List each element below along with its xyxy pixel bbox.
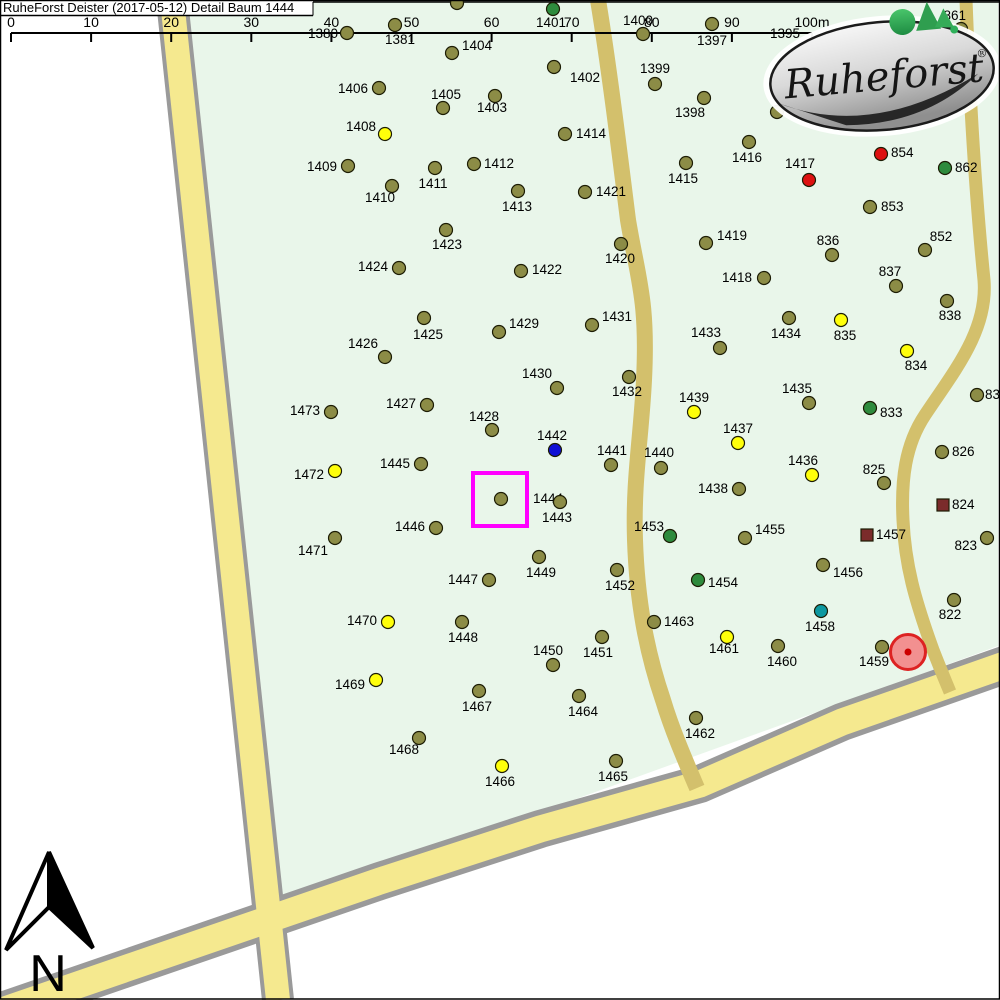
- tree-marker-1450[interactable]: [547, 659, 560, 672]
- tree-marker-1408[interactable]: [379, 128, 392, 141]
- tree-label-1465: 1465: [598, 769, 628, 784]
- tree-label-852: 852: [930, 229, 953, 244]
- tree-marker-1380[interactable]: [341, 27, 354, 40]
- tree-marker-853[interactable]: [864, 201, 877, 214]
- north-label: N: [29, 945, 67, 1000]
- tree-label-1447: 1447: [448, 572, 478, 587]
- tree-label-838: 838: [939, 308, 962, 323]
- tree-marker-826[interactable]: [936, 446, 949, 459]
- tree-label-1404: 1404: [462, 38, 493, 53]
- tree-marker-825[interactable]: [878, 477, 891, 490]
- tree-marker-862[interactable]: [939, 162, 952, 175]
- tree-marker-unlabeled[interactable]: [451, 0, 464, 10]
- tree-label-1449: 1449: [526, 565, 556, 580]
- tree-marker-1405[interactable]: [437, 102, 450, 115]
- tree-label-1446: 1446: [395, 519, 425, 534]
- tree-marker-1409[interactable]: [342, 160, 355, 173]
- tree-marker-1426[interactable]: [379, 351, 392, 364]
- tree-marker-1464[interactable]: [573, 690, 586, 703]
- tree-label-1411: 1411: [418, 176, 447, 191]
- tree-label-1468: 1468: [389, 742, 419, 757]
- tree-marker-835[interactable]: [835, 314, 848, 327]
- tree-marker-1463[interactable]: [648, 616, 661, 629]
- tree-marker-1444[interactable]: [495, 493, 508, 506]
- tree-marker-1411[interactable]: [429, 162, 442, 175]
- tree-label-1412: 1412: [484, 156, 514, 171]
- logo-registered-mark: ®: [976, 47, 988, 61]
- tree-label-1472: 1472: [294, 467, 324, 482]
- tree-label-1459: 1459: [859, 654, 889, 669]
- tree-marker-1462[interactable]: [690, 712, 703, 725]
- tree-marker-1425[interactable]: [418, 312, 431, 325]
- tree-label-832: 832: [985, 387, 1000, 402]
- tree-label-1455: 1455: [755, 522, 785, 537]
- tree-label-1415: 1415: [668, 171, 698, 186]
- scale-tick-label: 10: [83, 14, 99, 30]
- tree-label-1448: 1448: [448, 630, 478, 645]
- tree-marker-1456[interactable]: [817, 559, 830, 572]
- tree-marker-1397[interactable]: [706, 18, 719, 31]
- tree-marker-1399[interactable]: [649, 78, 662, 91]
- tree-marker-854[interactable]: [875, 148, 888, 161]
- tree-label-854: 854: [891, 145, 914, 160]
- tree-label-1399: 1399: [640, 61, 670, 76]
- tree-label-1451: 1451: [583, 645, 613, 660]
- tree-label-1421: 1421: [596, 184, 626, 199]
- tree-marker-1448[interactable]: [456, 616, 469, 629]
- tree-label-1402: 1402: [570, 70, 600, 85]
- tree-label-1418: 1418: [722, 270, 752, 285]
- tree-label-1457: 1457: [876, 527, 906, 542]
- tree-marker-1430[interactable]: [551, 382, 564, 395]
- tree-marker-1449[interactable]: [533, 551, 546, 564]
- tree-marker-1438[interactable]: [733, 483, 746, 496]
- tree-marker-834[interactable]: [901, 345, 914, 358]
- tree-label-1413: 1413: [502, 199, 532, 214]
- tree-marker-1381[interactable]: [389, 19, 402, 32]
- tree-marker-1454[interactable]: [692, 574, 705, 587]
- tree-label-1445: 1445: [380, 456, 410, 471]
- tree-label-1452: 1452: [605, 578, 635, 593]
- tree-marker-1434[interactable]: [783, 312, 796, 325]
- tree-marker-1427[interactable]: [421, 399, 434, 412]
- tree-marker-1471[interactable]: [329, 532, 342, 545]
- north-arrow-right-half: [49, 852, 93, 948]
- tree-marker-1412[interactable]: [468, 158, 481, 171]
- tree-label-1443: 1443: [542, 510, 572, 525]
- tree-label-1471: 1471: [298, 543, 328, 558]
- tree-marker-1459[interactable]: [876, 641, 889, 654]
- tree-marker-837[interactable]: [890, 280, 903, 293]
- tree-label-1454: 1454: [708, 575, 739, 590]
- tree-label-1473: 1473: [290, 403, 320, 418]
- tree-label-823: 823: [954, 538, 977, 553]
- tree-label-1436: 1436: [788, 453, 818, 468]
- tree-label-1432: 1432: [612, 384, 642, 399]
- tree-marker-1458[interactable]: [815, 605, 828, 618]
- tree-label-1426: 1426: [348, 336, 378, 351]
- scale-tick-label: 90: [724, 14, 740, 30]
- tree-marker-1460[interactable]: [772, 640, 785, 653]
- tree-label-1424: 1424: [358, 259, 389, 274]
- tree-label-1419: 1419: [717, 228, 747, 243]
- tree-label-1453: 1453: [634, 519, 664, 534]
- tree-marker-1447[interactable]: [483, 574, 496, 587]
- tree-marker-1451[interactable]: [596, 631, 609, 644]
- tree-label-1431: 1431: [602, 309, 632, 324]
- tree-marker-1432[interactable]: [623, 371, 636, 384]
- tree-label-1464: 1464: [568, 704, 599, 719]
- tree-label-1466: 1466: [485, 774, 515, 789]
- scale-tick-label: 70: [564, 14, 580, 30]
- tree-marker-1455[interactable]: [739, 532, 752, 545]
- tree-marker-1469[interactable]: [370, 674, 383, 687]
- tree-label-1409: 1409: [307, 159, 337, 174]
- tree-label-1405: 1405: [431, 87, 461, 102]
- tree-marker-836[interactable]: [826, 249, 839, 262]
- tree-label-1427: 1427: [386, 396, 416, 411]
- tree-label-1430: 1430: [522, 366, 552, 381]
- tree-label-1461: 1461: [709, 641, 739, 656]
- scale-tick-label: 50: [404, 14, 420, 30]
- tree-marker-1424[interactable]: [393, 262, 406, 275]
- scale-tick-label: 0: [7, 14, 15, 30]
- tree-label-836: 836: [817, 233, 840, 248]
- tree-label-1397: 1397: [697, 33, 727, 48]
- scale-tick-label: 20: [163, 14, 179, 30]
- tree-label-1400: 1400: [623, 13, 653, 28]
- tree-label-1435: 1435: [782, 381, 812, 396]
- tree-marker-1446[interactable]: [430, 522, 443, 535]
- tree-label-1395: 1395: [770, 26, 800, 41]
- tree-marker-1436[interactable]: [806, 469, 819, 482]
- tree-marker-1441[interactable]: [605, 459, 618, 472]
- tree-marker-823[interactable]: [981, 532, 994, 545]
- tree-marker-1422[interactable]: [515, 265, 528, 278]
- grave-site-marker[interactable]: [891, 635, 926, 670]
- tree-label-1470: 1470: [347, 613, 377, 628]
- map-application-window: RuheForst Deister (2017-05-12) Detail Ba…: [0, 0, 1000, 1000]
- tree-label-1410: 1410: [365, 190, 395, 205]
- tree-marker-1423[interactable]: [440, 224, 453, 237]
- tree-label-1420: 1420: [605, 251, 635, 266]
- tree-label-1423: 1423: [432, 237, 462, 252]
- tree-marker-1442[interactable]: [549, 444, 562, 457]
- tree-label-1380: 1380: [308, 26, 338, 41]
- tree-marker-1445[interactable]: [415, 458, 428, 471]
- tree-marker-1465[interactable]: [610, 755, 623, 768]
- tree-label-1416: 1416: [732, 150, 762, 165]
- tree-marker-1467[interactable]: [473, 685, 486, 698]
- tree-label-1450: 1450: [533, 643, 563, 658]
- tree-label-825: 825: [863, 462, 886, 477]
- tree-marker-1418[interactable]: [758, 272, 771, 285]
- tree-marker-1429[interactable]: [493, 326, 506, 339]
- tree-label-834: 834: [905, 358, 928, 373]
- tree-marker-1414[interactable]: [559, 128, 572, 141]
- tree-label-1456: 1456: [833, 565, 863, 580]
- tree-label-1381: 1381: [385, 32, 415, 47]
- north-arrow-left-half: [6, 852, 49, 950]
- tree-label-1441: 1441: [597, 443, 627, 458]
- tree-label-862: 862: [955, 160, 978, 175]
- tree-label-1437: 1437: [723, 421, 753, 436]
- tree-label-835: 835: [834, 328, 857, 343]
- grave-center-dot: [905, 649, 912, 656]
- tree-label-1434: 1434: [771, 326, 802, 341]
- tree-marker-1398[interactable]: [698, 92, 711, 105]
- tree-label-1433: 1433: [691, 325, 721, 340]
- tree-label-1440: 1440: [644, 445, 674, 460]
- tree-label-1417: 1417: [785, 156, 815, 171]
- tree-label-1438: 1438: [698, 481, 728, 496]
- tree-label-1439: 1439: [679, 390, 709, 405]
- map-canvas[interactable]: RuheForst Deister (2017-05-12) Detail Ba…: [0, 0, 1000, 1000]
- tree-marker-1420[interactable]: [615, 238, 628, 251]
- tree-marker-1402[interactable]: [548, 61, 561, 74]
- tree-marker-1401[interactable]: [547, 3, 560, 16]
- tree-label-833: 833: [880, 405, 903, 420]
- tree-label-1458: 1458: [805, 619, 835, 634]
- tree-marker-1413[interactable]: [512, 185, 525, 198]
- tree-label-826: 826: [952, 444, 975, 459]
- tree-marker-852[interactable]: [919, 244, 932, 257]
- tree-label-824: 824: [952, 497, 975, 512]
- tree-marker-1416[interactable]: [743, 136, 756, 149]
- tree-label-1414: 1414: [576, 126, 607, 141]
- tree-marker-1415[interactable]: [680, 157, 693, 170]
- tree-marker-1443[interactable]: [554, 496, 567, 509]
- tree-label-1462: 1462: [685, 726, 715, 741]
- tree-marker-1452[interactable]: [611, 564, 624, 577]
- tree-marker-838[interactable]: [941, 295, 954, 308]
- tree-marker-1419[interactable]: [700, 237, 713, 250]
- tree-label-1428: 1428: [469, 409, 499, 424]
- tree-label-1467: 1467: [462, 699, 492, 714]
- tree-label-1425: 1425: [413, 327, 443, 342]
- tree-marker-1453[interactable]: [664, 530, 677, 543]
- tree-label-1429: 1429: [509, 316, 539, 331]
- tree-marker-1472[interactable]: [329, 465, 342, 478]
- tree-marker-1435[interactable]: [803, 397, 816, 410]
- tree-label-837: 837: [879, 264, 902, 279]
- tree-label-1442: 1442: [537, 428, 567, 443]
- scale-tick-label: 30: [244, 14, 260, 30]
- tree-marker-1440[interactable]: [655, 462, 668, 475]
- tree-marker-1437[interactable]: [732, 437, 745, 450]
- tree-label-853: 853: [881, 199, 904, 214]
- tree-marker-1473[interactable]: [325, 406, 338, 419]
- tree-marker-824[interactable]: [937, 499, 949, 511]
- scale-tick-label: 60: [484, 14, 500, 30]
- tree-marker-1406[interactable]: [373, 82, 386, 95]
- tree-label-1401: 1401: [536, 15, 566, 30]
- tree-label-1398: 1398: [675, 105, 705, 120]
- tree-marker-1428[interactable]: [486, 424, 499, 437]
- tree-label-822: 822: [939, 607, 962, 622]
- tree-marker-833[interactable]: [864, 402, 877, 415]
- tree-marker-1433[interactable]: [714, 342, 727, 355]
- tree-marker-1421[interactable]: [579, 186, 592, 199]
- tree-marker-1400[interactable]: [637, 28, 650, 41]
- tree-label-1408: 1408: [346, 119, 376, 134]
- map-title: RuheForst Deister (2017-05-12) Detail Ba…: [3, 0, 294, 15]
- tree-marker-1466[interactable]: [496, 760, 509, 773]
- tree-marker-1457[interactable]: [861, 529, 873, 541]
- tree-label-1422: 1422: [532, 262, 562, 277]
- tree-label-1406: 1406: [338, 81, 368, 96]
- tree-marker-832[interactable]: [971, 389, 984, 402]
- tree-marker-1404[interactable]: [446, 47, 459, 60]
- tree-marker-1470[interactable]: [382, 616, 395, 629]
- tree-marker-1417[interactable]: [803, 174, 816, 187]
- tree-marker-1431[interactable]: [586, 319, 599, 332]
- tree-label-1403: 1403: [477, 100, 507, 115]
- tree-marker-822[interactable]: [948, 594, 961, 607]
- tree-marker-1439[interactable]: [688, 406, 701, 419]
- tree-label-1460: 1460: [767, 654, 797, 669]
- tree-label-1469: 1469: [335, 677, 365, 692]
- tree-label-1463: 1463: [664, 614, 694, 629]
